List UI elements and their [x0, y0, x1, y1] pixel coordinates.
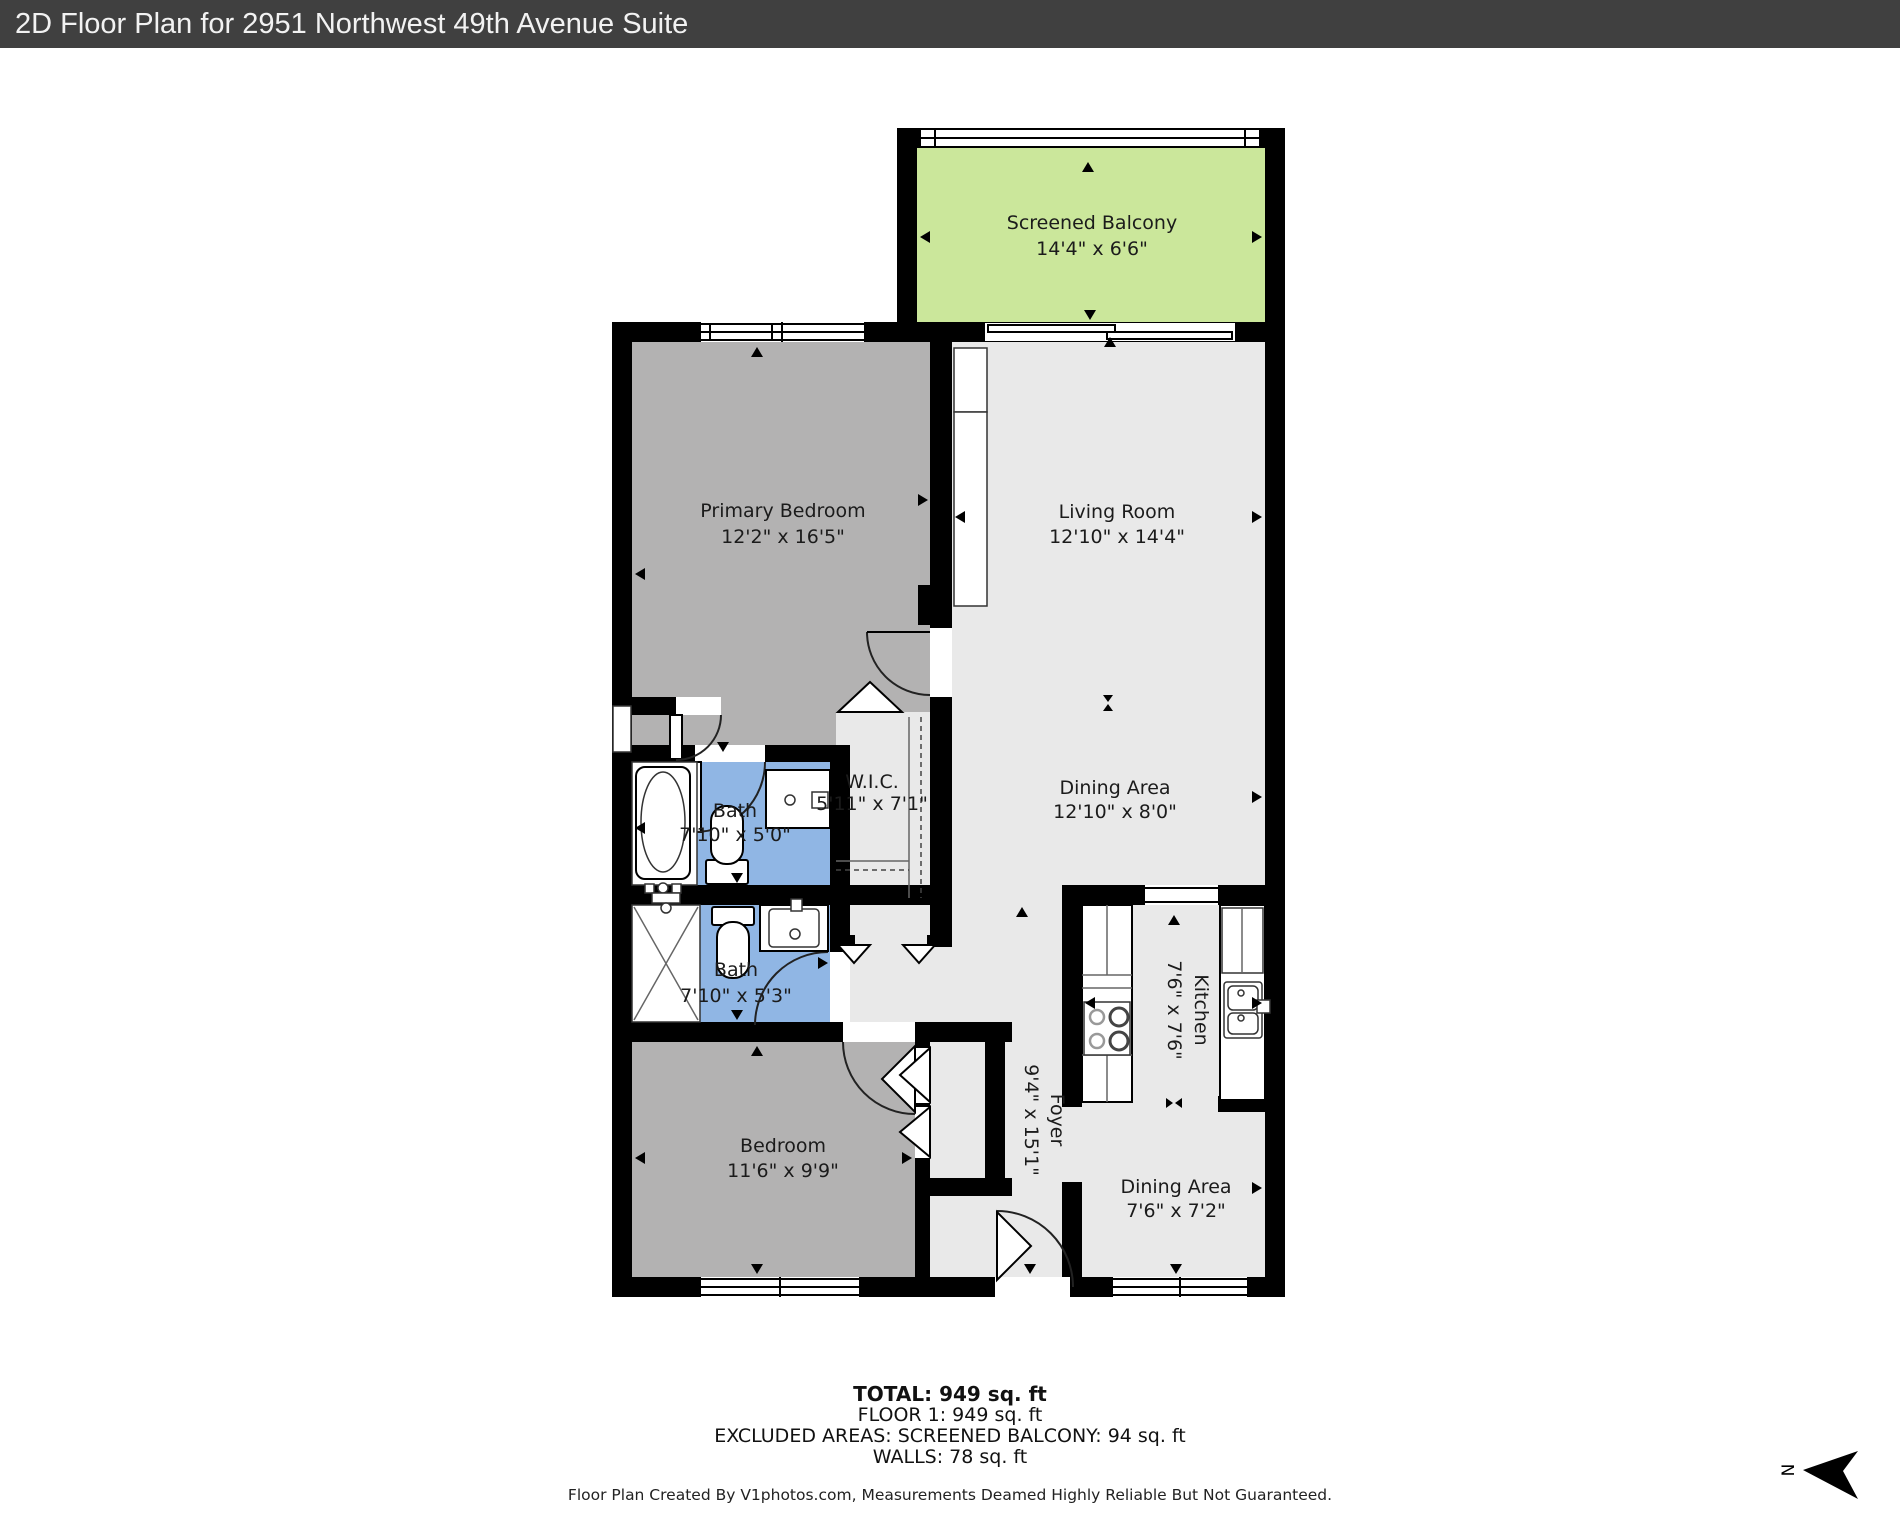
sink-1-drain	[785, 795, 795, 805]
linen-door	[613, 706, 631, 752]
svg-text:Bath: Bath	[714, 959, 758, 981]
svg-text:Dining Area: Dining Area	[1059, 777, 1170, 799]
living-builtin-lower	[954, 412, 987, 606]
svg-text:7'6" x 7'2": 7'6" x 7'2"	[1126, 1200, 1226, 1222]
svg-text:Screened Balcony: Screened Balcony	[1007, 212, 1177, 234]
tub-faucet	[658, 883, 668, 893]
svg-text:Bedroom: Bedroom	[740, 1135, 826, 1157]
svg-text:Foyer: Foyer	[1046, 1094, 1068, 1147]
svg-text:12'10" x 8'0": 12'10" x 8'0"	[1053, 801, 1177, 823]
summary-walls: WALLS: 78 sq. ft	[0, 1447, 1900, 1468]
svg-text:12'10" x 14'4": 12'10" x 14'4"	[1049, 526, 1185, 548]
floor-plan-page: 2D Floor Plan for 2951 Northwest 49th Av…	[0, 0, 1900, 1536]
svg-text:Kitchen: Kitchen	[1190, 974, 1212, 1045]
summary-total: TOTAL: 949 sq. ft	[0, 1384, 1900, 1405]
vestibule-door-leaf	[670, 715, 682, 759]
floor-plan-svg: Screened Balcony 14'4" x 6'6" Primary Be…	[0, 0, 1900, 1536]
svg-text:W.I.C.: W.I.C.	[845, 771, 899, 793]
sink-2-drain	[790, 929, 800, 939]
svg-text:7'6" x 7'6": 7'6" x 7'6"	[1163, 960, 1185, 1060]
svg-text:11'6" x 9'9": 11'6" x 9'9"	[727, 1160, 839, 1182]
summary-floor: FLOOR 1: 949 sq. ft	[0, 1405, 1900, 1426]
disclaimer: Floor Plan Created By V1photos.com, Meas…	[0, 1486, 1900, 1504]
area-summary: TOTAL: 949 sq. ft FLOOR 1: 949 sq. ft EX…	[0, 1384, 1900, 1468]
svg-text:12'2" x 16'5": 12'2" x 16'5"	[721, 526, 845, 548]
shower-valve	[652, 893, 680, 903]
svg-text:9'4" x 15'1": 9'4" x 15'1"	[1020, 1064, 1042, 1176]
svg-text:5'11" x 7'1": 5'11" x 7'1"	[816, 793, 928, 815]
svg-text:14'4" x 6'6": 14'4" x 6'6"	[1036, 238, 1148, 260]
wic-hall-floor	[836, 712, 935, 745]
svg-text:Dining Area: Dining Area	[1120, 1176, 1231, 1198]
living-builtin-upper	[954, 348, 987, 412]
svg-text:7'10" x 5'0": 7'10" x 5'0"	[679, 824, 791, 846]
svg-text:Bath: Bath	[713, 800, 757, 822]
balcony-floor	[917, 148, 1265, 322]
svg-text:7'10" x 5'3": 7'10" x 5'3"	[680, 985, 792, 1007]
summary-excluded: EXCLUDED AREAS: SCREENED BALCONY: 94 sq.…	[0, 1426, 1900, 1447]
svg-text:Living Room: Living Room	[1059, 501, 1176, 523]
svg-text:Primary Bedroom: Primary Bedroom	[700, 500, 865, 522]
